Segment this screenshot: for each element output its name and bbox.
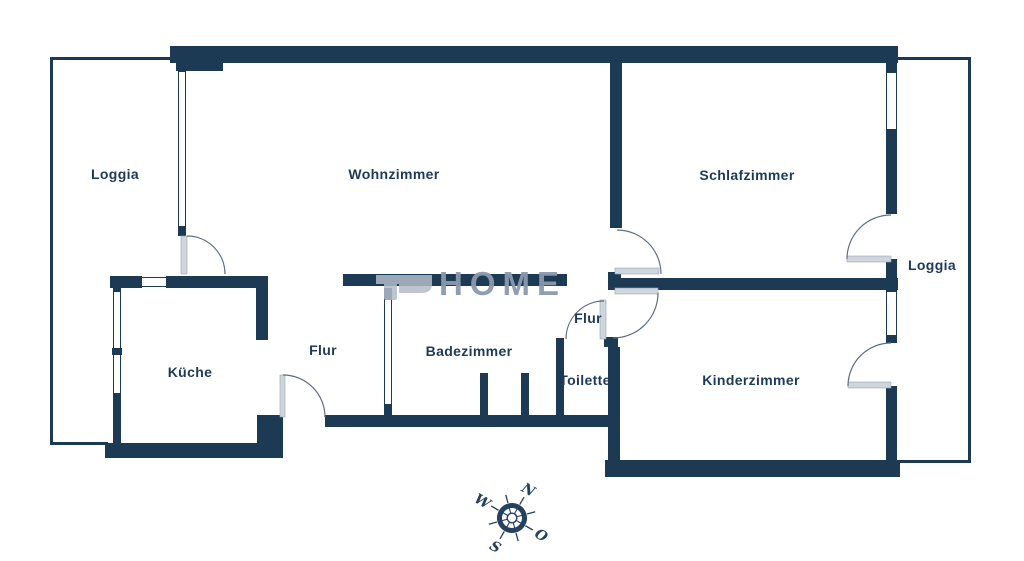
compass-east-label: O <box>532 526 551 546</box>
room-label-loggia-left: Loggia <box>91 166 139 182</box>
door-arc-kinderzimmer-loggia <box>848 343 891 386</box>
room-label-badezimmer: Badezimmer <box>426 343 513 359</box>
watermark-text: HOME <box>439 269 566 299</box>
door-leaf-kinderzimmer <box>615 288 658 294</box>
room-label-kueche: Küche <box>168 364 213 380</box>
compass-north-label: N <box>518 480 539 501</box>
door-arc-schlafzimmer-loggia <box>847 215 891 259</box>
door-arc-kinderzimmer <box>613 293 658 338</box>
door-arc-loggia-wohnzimmer <box>187 236 225 274</box>
room-label-flur-2: Flur <box>574 310 602 326</box>
room-label-wohnzimmer: Wohnzimmer <box>348 166 439 182</box>
door-leaf-entrance <box>280 375 285 417</box>
room-label-kinderzimmer: Kinderzimmer <box>702 372 800 388</box>
door-leaf-loggia-wohnzimmer <box>181 236 187 274</box>
door-leaf-schlafzimmer-loggia <box>847 256 891 262</box>
door-leaf-kinderzimmer-loggia <box>848 382 891 388</box>
door-arc-entrance <box>283 375 325 417</box>
watermark-logo-icon <box>376 273 434 301</box>
door-leaf-schlafzimmer <box>615 268 659 274</box>
door-arc-schlafzimmer <box>617 230 661 274</box>
room-label-flur: Flur <box>309 342 337 358</box>
compass-west-label: W <box>471 491 494 513</box>
compass-rose: N O S W <box>457 464 567 561</box>
compass-south-label: S <box>487 538 504 557</box>
room-label-schlafzimmer: Schlafzimmer <box>699 167 794 183</box>
floorplan: Loggia Wohnzimmer Schlafzimmer Loggia Kü… <box>0 0 1024 561</box>
room-label-loggia-right: Loggia <box>908 257 956 273</box>
room-label-toilette: Toilette <box>559 372 611 388</box>
